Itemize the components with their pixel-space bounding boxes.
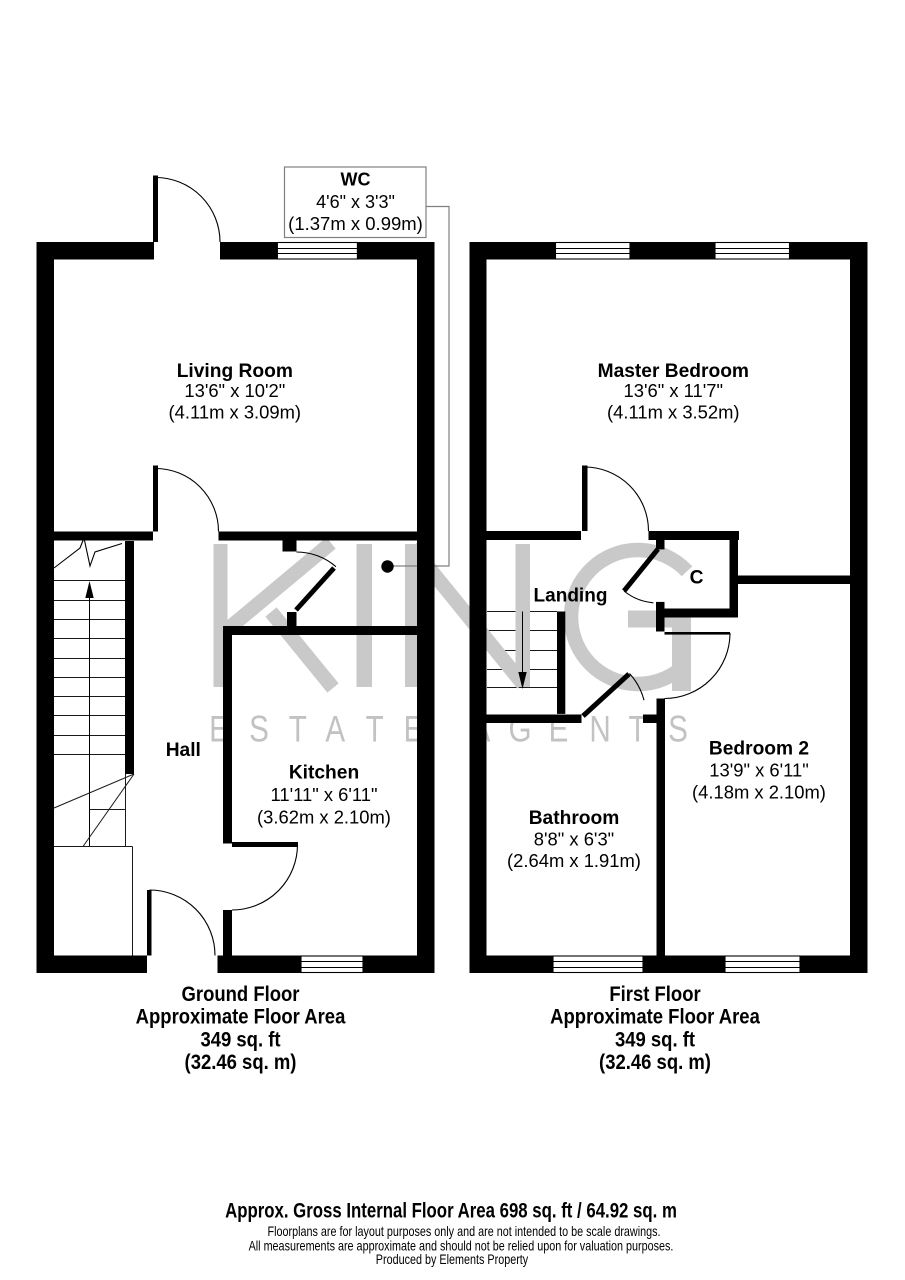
svg-text:(32.46 sq. m): (32.46 sq. m) [185,1051,297,1074]
svg-text:Floorplans are for layout purp: Floorplans are for layout purposes only … [267,1224,660,1239]
svg-text:T: T [289,709,307,750]
svg-text:Landing: Landing [534,586,608,607]
svg-text:Produced by Elements Property: Produced by Elements Property [376,1252,529,1267]
svg-text:T: T [366,709,384,750]
svg-text:8'8" x 6'3": 8'8" x 6'3" [534,829,614,850]
svg-text:WC: WC [341,170,371,190]
svg-text:13'6" x 10'2": 13'6" x 10'2" [184,380,285,401]
svg-text:13'9" x 6'11": 13'9" x 6'11" [709,760,809,781]
svg-text:(32.46 sq. m): (32.46 sq. m) [599,1051,711,1074]
svg-text:13'6" x 11'7": 13'6" x 11'7" [624,380,724,401]
svg-text:(2.64m x 1.91m): (2.64m x 1.91m) [507,850,641,871]
svg-text:Living Room: Living Room [177,361,293,382]
svg-text:Approx. Gross Internal Floor A: Approx. Gross Internal Floor Area 698 sq… [225,1200,677,1223]
svg-text:(4.11m x 3.52m): (4.11m x 3.52m) [607,402,740,423]
svg-text:349 sq. ft: 349 sq. ft [615,1028,695,1051]
svg-text:S: S [249,709,269,750]
svg-text:C: C [690,568,704,589]
svg-text:Kitchen: Kitchen [289,763,359,784]
svg-text:Bathroom: Bathroom [529,808,620,829]
svg-text:Approximate Floor Area: Approximate Floor Area [550,1006,761,1029]
svg-text:(4.11m x 3.09m): (4.11m x 3.09m) [169,402,302,423]
svg-text:Hall: Hall [166,740,201,761]
svg-text:Ground Floor: Ground Floor [182,983,300,1006]
svg-text:349 sq. ft: 349 sq. ft [200,1028,280,1051]
svg-text:N: N [589,709,610,750]
svg-text:(4.18m x 2.10m): (4.18m x 2.10m) [692,782,826,803]
svg-text:S: S [668,709,688,750]
svg-text:(3.62m x 2.10m): (3.62m x 2.10m) [257,807,391,828]
svg-text:4'6" x 3'3": 4'6" x 3'3" [316,192,395,212]
svg-text:(1.37m x 0.99m): (1.37m x 0.99m) [288,213,423,234]
svg-text:Approximate Floor Area: Approximate Floor Area [136,1006,347,1029]
svg-text:Bedroom 2: Bedroom 2 [709,739,809,760]
svg-text:First Floor: First Floor [609,983,701,1006]
svg-text:Master Bedroom: Master Bedroom [598,361,749,382]
svg-text:A: A [325,709,345,750]
svg-text:11'11" x 6'11": 11'11" x 6'11" [271,784,378,805]
